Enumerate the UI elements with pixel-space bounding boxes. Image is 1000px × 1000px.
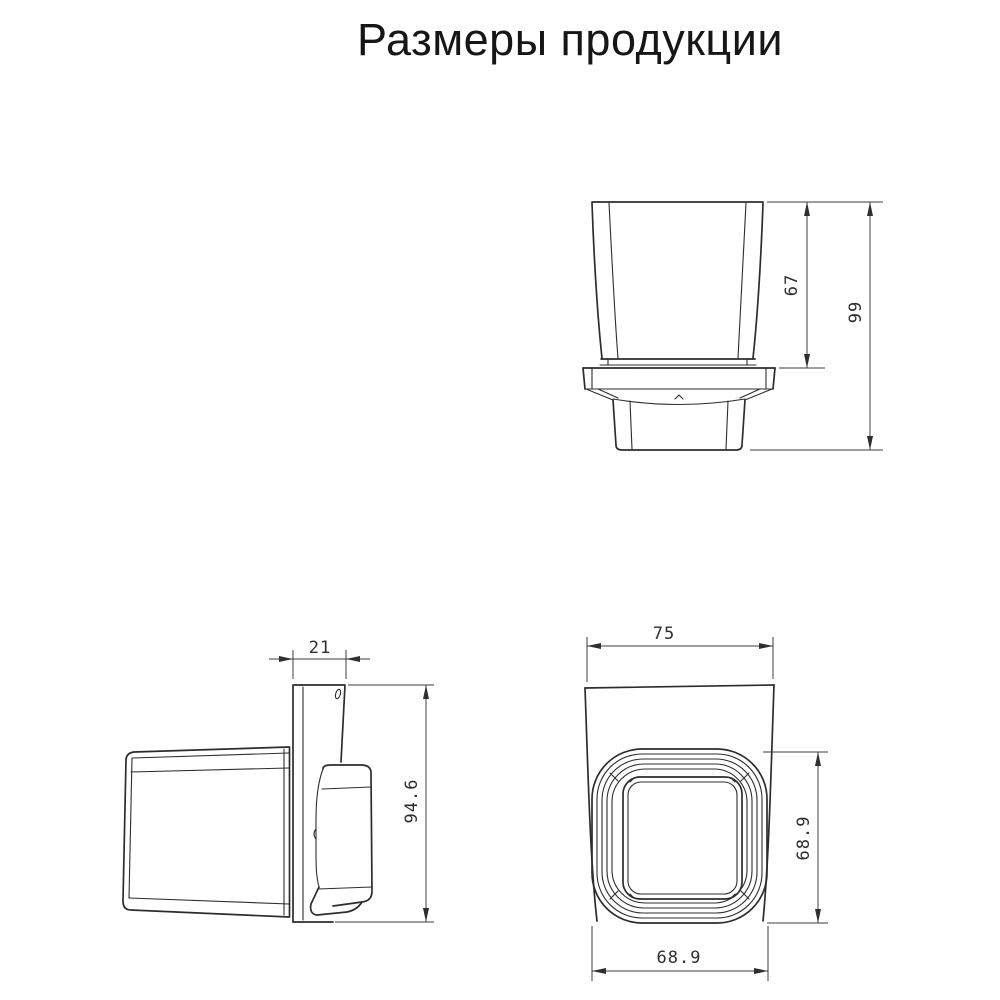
arrow-21-right [346, 656, 360, 662]
top-view-left-side [585, 688, 597, 921]
holder-flange-ends [583, 368, 775, 389]
bracket-left-edge [316, 769, 323, 887]
bracket-outline [323, 765, 372, 906]
bracket-band-bottom [318, 887, 372, 889]
dimension-drawing-page: Размеры продукции [0, 0, 1000, 1000]
cup-left-outer-wall [592, 203, 602, 358]
arrow-689b-right [754, 968, 768, 974]
arrow-67-up [804, 202, 810, 216]
opening-inner [628, 782, 737, 894]
bracket-lower-lip [311, 887, 362, 915]
side-cup-rim-line-top [133, 753, 289, 758]
side-cup-band-bottom [129, 898, 289, 904]
dim-label-rim-width: 68.9 [657, 948, 702, 968]
arrow-689r-up [815, 752, 821, 766]
rim-corner-ticks [610, 773, 749, 899]
arrow-946-up [423, 685, 429, 699]
technical-drawing: 67 99 [0, 0, 1000, 1000]
cup-right-inner-wall [738, 203, 746, 358]
top-ext-lines-75 [587, 637, 773, 682]
top-view-top-edge [585, 685, 774, 688]
dim-label-rim-depth: 68.9 [794, 816, 814, 861]
arrow-99-down [867, 436, 873, 450]
opening-corner-ticks [630, 778, 735, 898]
opening-outer [623, 777, 742, 899]
arrow-67-down [804, 354, 810, 368]
holder-arc-apex-tick [675, 395, 683, 399]
screw-hole [334, 689, 341, 699]
arrow-689r-down [815, 909, 821, 923]
side-cup-left-inner [129, 758, 132, 898]
holder-base-inner-walls [630, 401, 728, 449]
arrow-75-left [587, 643, 601, 649]
side-cup-band-top [131, 768, 289, 772]
arrow-946-down [423, 908, 429, 922]
dim-label-top-width: 75 [653, 624, 675, 644]
cup-right-outer-wall [753, 203, 763, 358]
side-view: 21 94.6 [123, 638, 434, 922]
rim-contour-5 [612, 769, 747, 903]
top-view: 75 68.9 68.9 [585, 624, 828, 981]
arrow-99-up [867, 202, 873, 216]
holder-flange-chamfer-lines [592, 368, 766, 389]
cup-left-inner-wall [609, 203, 618, 358]
cup-bottom-rim-ticks [608, 359, 747, 365]
side-cup-outline [123, 747, 289, 917]
front-view: 67 99 [583, 202, 883, 450]
holder-inner-arc [613, 399, 745, 405]
arrow-689b-left [592, 968, 606, 974]
arrow-75-right [759, 643, 773, 649]
dim-label-plate-depth: 21 [309, 638, 331, 658]
bracket-band-top [322, 787, 371, 789]
arrow-21-left [279, 656, 293, 662]
holder-base-outline [613, 400, 745, 450]
dim-label-cup-height: 67 [782, 274, 802, 296]
dim-label-total-height: 99 [846, 301, 866, 323]
dim-label-side-height: 94.6 [402, 779, 422, 824]
